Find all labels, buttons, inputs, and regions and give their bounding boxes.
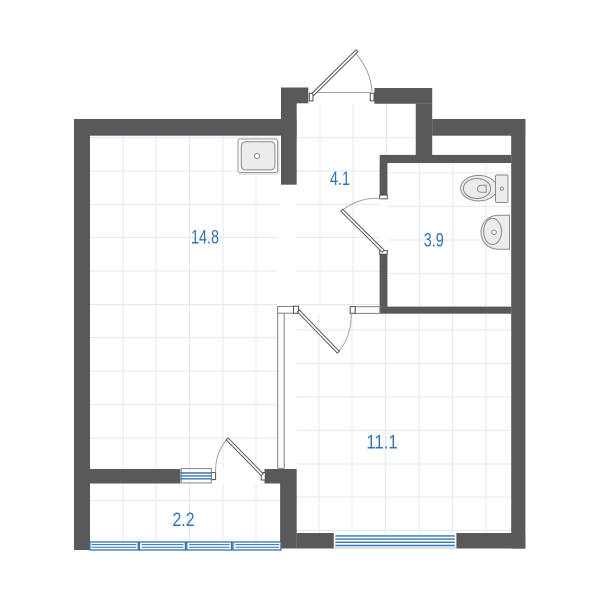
- svg-text:2.2: 2.2: [173, 509, 195, 531]
- svg-text:3.9: 3.9: [424, 229, 444, 251]
- svg-text:14.8: 14.8: [191, 227, 219, 249]
- svg-text:4.1: 4.1: [330, 168, 350, 190]
- svg-text:11.1: 11.1: [366, 432, 397, 454]
